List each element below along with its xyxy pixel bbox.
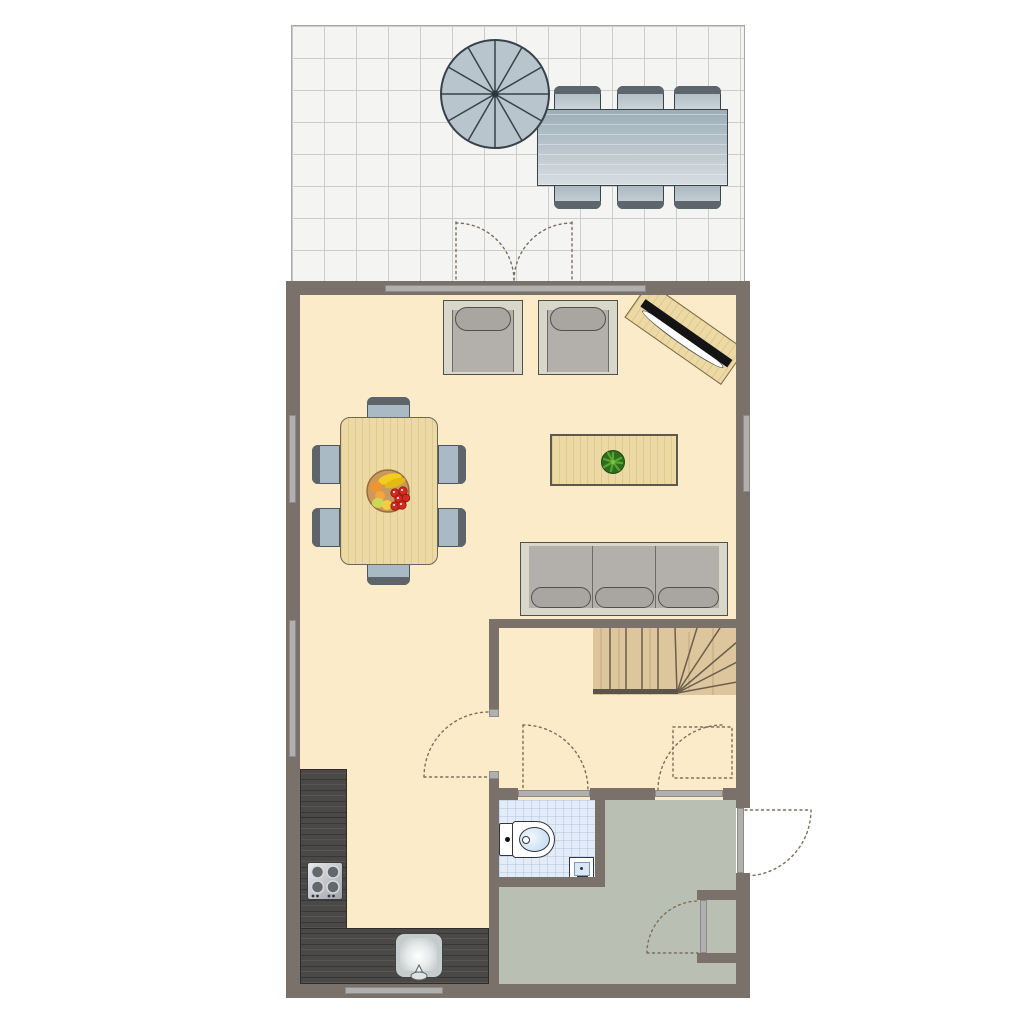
winder-staircase[interactable] [593, 628, 737, 695]
side-entrance-door-jamb [737, 808, 744, 873]
potted-plant[interactable] [600, 449, 626, 475]
dining-chair[interactable] [438, 445, 466, 484]
wall-stairs-top [489, 619, 750, 628]
dining-chair[interactable] [438, 508, 466, 547]
chair-backrest [312, 445, 320, 484]
kitchen-rear-window [345, 987, 443, 994]
armchair-cushion [550, 307, 606, 331]
closet-door-jamb [700, 900, 707, 953]
outdoor-chair[interactable] [617, 183, 664, 209]
door-jamb [655, 790, 723, 797]
doorway-living [489, 709, 499, 779]
outdoor-chair[interactable] [674, 183, 721, 209]
chair-backrest [367, 397, 410, 405]
kitchen-sink[interactable] [395, 933, 443, 978]
wall-bathroom-right [595, 800, 605, 887]
outdoor-dining-table[interactable] [537, 109, 728, 186]
chair-backrest [458, 445, 466, 484]
side-entrance-door [745, 810, 811, 876]
toilet-flush-dot [522, 836, 530, 844]
chair-backrest [367, 577, 410, 585]
left-wall-window-upper [289, 415, 296, 503]
cooktop-4-burners[interactable] [307, 862, 343, 900]
wall-hall-bottom-c [723, 788, 750, 800]
right-wall-window [743, 415, 750, 492]
chair-backrest [554, 201, 601, 209]
wall-closet-top [697, 890, 750, 900]
outdoor-chair[interactable] [554, 183, 601, 209]
sofa-cushion [595, 587, 654, 608]
toilet-bowl[interactable] [512, 821, 555, 858]
armchair-cushion [455, 307, 511, 331]
dining-chair[interactable] [312, 445, 340, 484]
door-jamb [489, 709, 499, 717]
sofa-cushion [531, 587, 591, 608]
wall-hall-bottom-b [590, 788, 655, 800]
chair-backrest [312, 508, 320, 547]
armchair[interactable] [538, 300, 618, 375]
floor-plan-canvas [0, 0, 1024, 1024]
door-jamb [489, 771, 499, 779]
toilet-cistern-dot [505, 837, 510, 842]
wall-interior-vertical-upper [489, 619, 499, 709]
chair-backrest [674, 86, 721, 94]
chair-backrest [554, 86, 601, 94]
chair-backrest [617, 86, 664, 94]
wall-hall-bottom-a [489, 788, 518, 800]
armchair[interactable] [443, 300, 523, 375]
wall-right-upper [736, 281, 750, 808]
door-jamb [518, 790, 590, 797]
wall-bathroom-bottom [489, 877, 605, 887]
counter-seam [301, 817, 346, 818]
top-wall-window [385, 285, 646, 292]
sofa-3-seat[interactable] [520, 542, 728, 616]
chair-backrest [674, 201, 721, 209]
fruit-bowl[interactable] [366, 469, 410, 513]
chair-backrest [617, 201, 664, 209]
sofa-cushion [658, 587, 719, 608]
parasol[interactable] [439, 38, 551, 150]
dining-chair[interactable] [312, 508, 340, 547]
sink-faucet [409, 963, 429, 981]
chair-backrest [458, 508, 466, 547]
left-wall-window-lower [289, 620, 296, 757]
basin-drain [580, 867, 583, 870]
wall-closet-bottom [697, 953, 750, 963]
